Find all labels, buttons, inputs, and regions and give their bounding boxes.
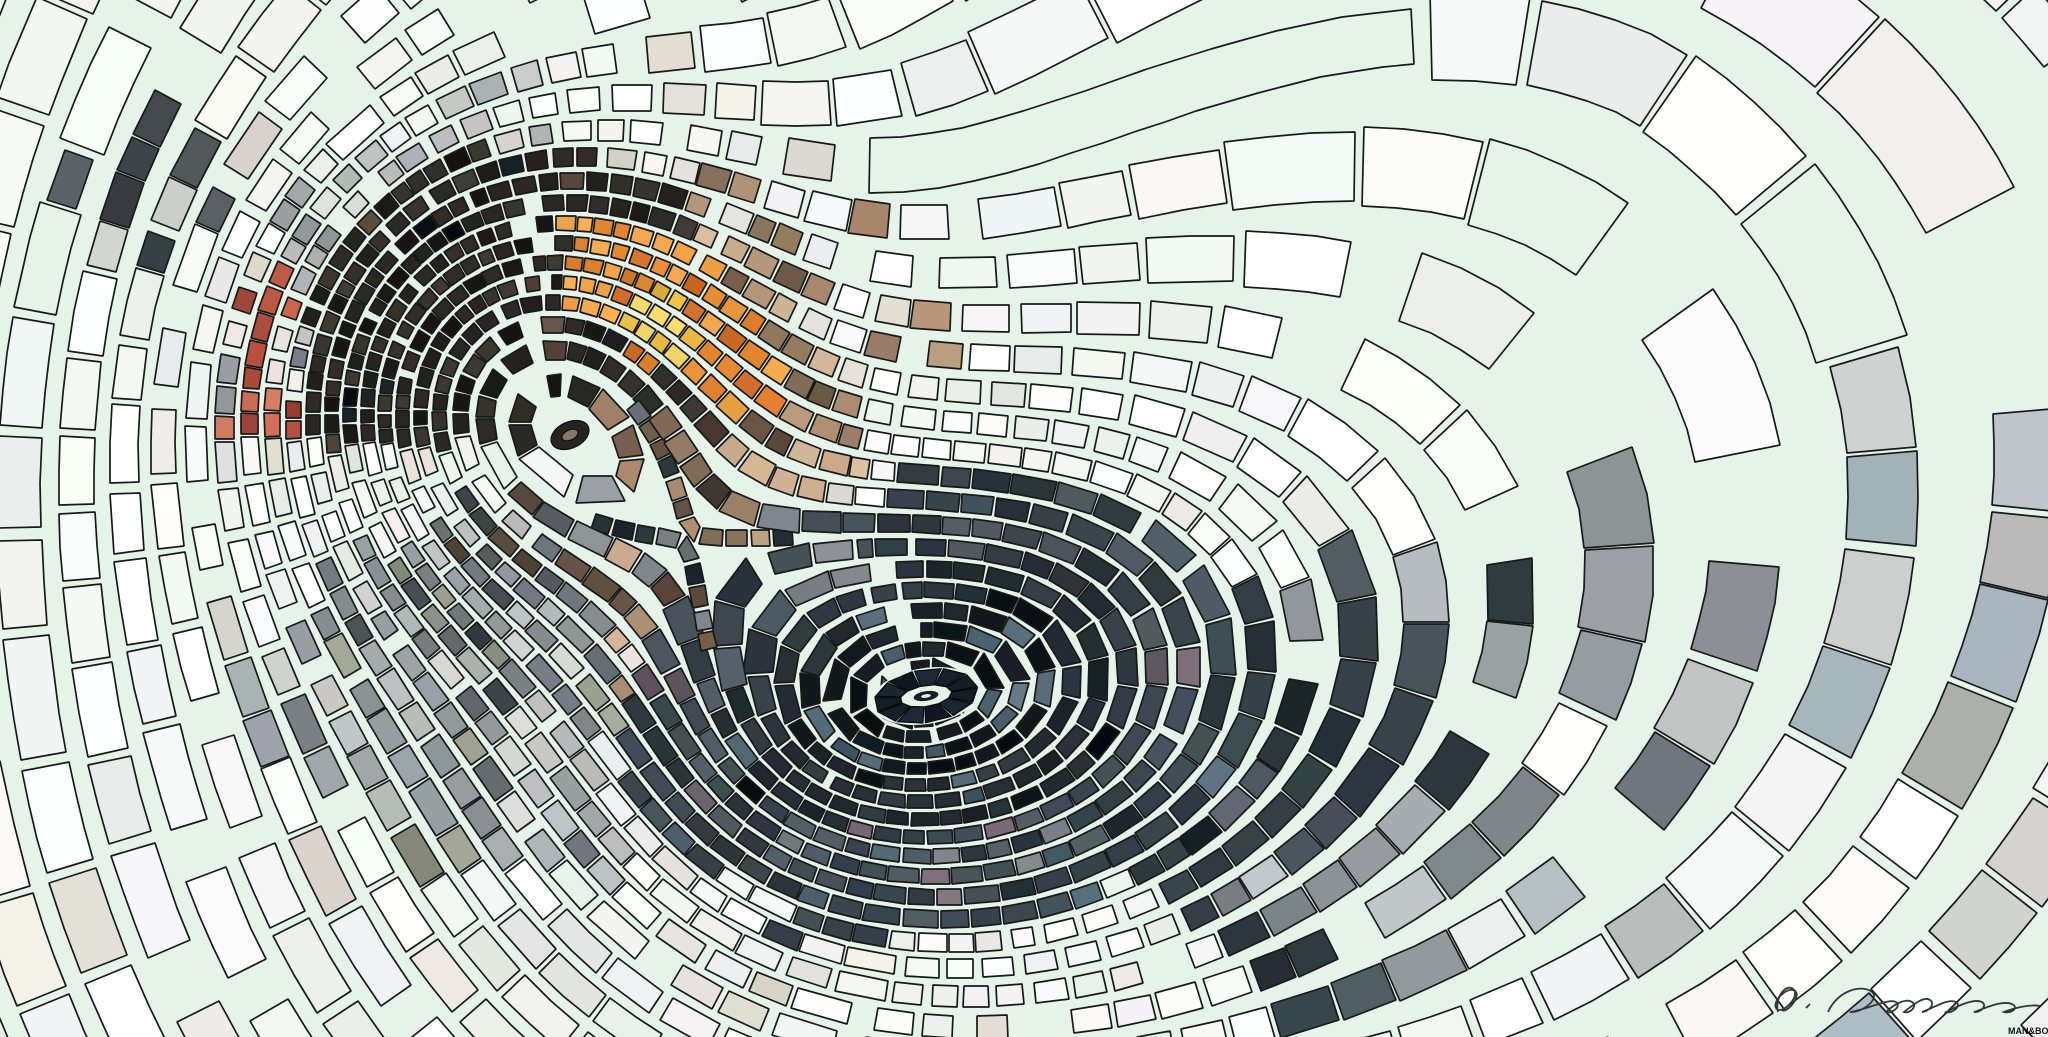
svg-text:MAN&BOT: MAN&BOT — [2008, 1026, 2048, 1036]
